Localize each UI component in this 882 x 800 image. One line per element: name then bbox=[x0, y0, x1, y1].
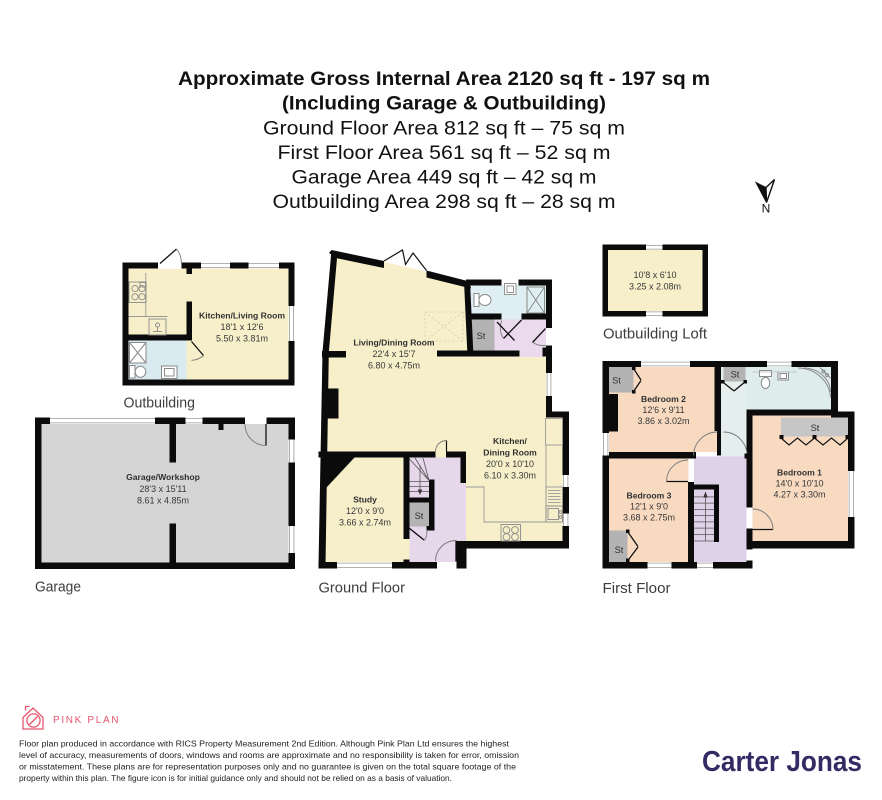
svg-text:PINK PLAN: PINK PLAN bbox=[53, 715, 119, 726]
svg-text:Ground Floor: Ground Floor bbox=[319, 581, 406, 597]
svg-text:Bedroom 1: Bedroom 1 bbox=[777, 468, 822, 478]
svg-text:Approximate Gross Internal Are: Approximate Gross Internal Area 2120 sq … bbox=[178, 69, 710, 90]
svg-text:Floor plan produced in accorda: Floor plan produced in accordance with R… bbox=[19, 740, 510, 749]
svg-text:St: St bbox=[811, 423, 820, 433]
svg-text:Outbuilding Loft: Outbuilding Loft bbox=[603, 327, 707, 343]
svg-text:Dining Room: Dining Room bbox=[483, 448, 537, 458]
svg-text:N: N bbox=[762, 202, 771, 216]
svg-text:Garage/Workshop: Garage/Workshop bbox=[126, 472, 200, 482]
svg-text:14'0 x 10'10: 14'0 x 10'10 bbox=[776, 479, 824, 489]
svg-text:20'0 x 10'10: 20'0 x 10'10 bbox=[486, 459, 534, 469]
svg-text:18'1 x 12'6: 18'1 x 12'6 bbox=[221, 322, 264, 332]
svg-text:12'0 x 9'0: 12'0 x 9'0 bbox=[346, 506, 384, 516]
svg-text:Living/Dining Room: Living/Dining Room bbox=[353, 338, 435, 348]
svg-text:Outbuilding: Outbuilding bbox=[124, 396, 196, 412]
svg-text:5.50 x 3.81m: 5.50 x 3.81m bbox=[216, 334, 268, 344]
svg-text:level of accuracy, measurement: level of accuracy, measurements of doors… bbox=[19, 751, 519, 760]
svg-text:St: St bbox=[612, 376, 621, 386]
svg-text:or misstatement. These plans a: or misstatement. These plans are for rep… bbox=[19, 763, 516, 772]
svg-text:6.10 x 3.30m: 6.10 x 3.30m bbox=[484, 471, 536, 481]
svg-text:Garage: Garage bbox=[35, 580, 81, 596]
svg-text:12'1 x 9'0: 12'1 x 9'0 bbox=[630, 502, 668, 512]
svg-text:3.68 x 2.75m: 3.68 x 2.75m bbox=[623, 513, 675, 523]
svg-text:St: St bbox=[731, 370, 740, 380]
svg-text:Study: Study bbox=[353, 495, 377, 505]
svg-text:10'8 x 6'10: 10'8 x 6'10 bbox=[634, 270, 677, 280]
svg-text:3.86 x 3.02m: 3.86 x 3.02m bbox=[637, 416, 689, 426]
svg-text:St: St bbox=[615, 545, 624, 555]
svg-text:28'3 x 15'11: 28'3 x 15'11 bbox=[139, 484, 186, 494]
svg-text:6.80 x 4.75m: 6.80 x 4.75m bbox=[368, 361, 420, 371]
svg-text:Outbuilding Area 298 sq ft – 2: Outbuilding Area 298 sq ft – 28 sq m bbox=[273, 192, 616, 213]
svg-text:Bedroom 2: Bedroom 2 bbox=[641, 394, 686, 404]
svg-text:4.27 x 3.30m: 4.27 x 3.30m bbox=[773, 490, 825, 500]
svg-text:Kitchen/Living Room: Kitchen/Living Room bbox=[199, 311, 285, 321]
svg-text:22'4 x 15'7: 22'4 x 15'7 bbox=[373, 349, 416, 359]
svg-text:Bedroom 3: Bedroom 3 bbox=[627, 491, 672, 501]
svg-text:(Including Garage & Outbuildin: (Including Garage & Outbuilding) bbox=[282, 94, 606, 115]
svg-text:Garage Area 449 sq ft – 42 sq: Garage Area 449 sq ft – 42 sq m bbox=[292, 168, 597, 189]
svg-text:8.61 x 4.85m: 8.61 x 4.85m bbox=[137, 496, 189, 506]
svg-text:Carter Jonas: Carter Jonas bbox=[702, 746, 862, 778]
svg-text:12'6 x 9'11: 12'6 x 9'11 bbox=[642, 405, 684, 415]
svg-text:St: St bbox=[415, 511, 424, 521]
svg-text:First Floor: First Floor bbox=[603, 581, 671, 597]
svg-text:3.25 x 2.08m: 3.25 x 2.08m bbox=[629, 282, 681, 292]
svg-text:St: St bbox=[477, 331, 486, 341]
svg-text:Kitchen/: Kitchen/ bbox=[493, 436, 528, 446]
svg-text:First Floor Area 561 sq ft – 5: First Floor Area 561 sq ft – 52 sq m bbox=[278, 143, 611, 164]
svg-text:3.66 x 2.74m: 3.66 x 2.74m bbox=[339, 518, 391, 528]
svg-text:property within this plan. The: property within this plan. The figure ic… bbox=[19, 774, 452, 783]
svg-text:Ground Floor Area 812 sq ft –: Ground Floor Area 812 sq ft – 75 sq m bbox=[263, 119, 625, 140]
